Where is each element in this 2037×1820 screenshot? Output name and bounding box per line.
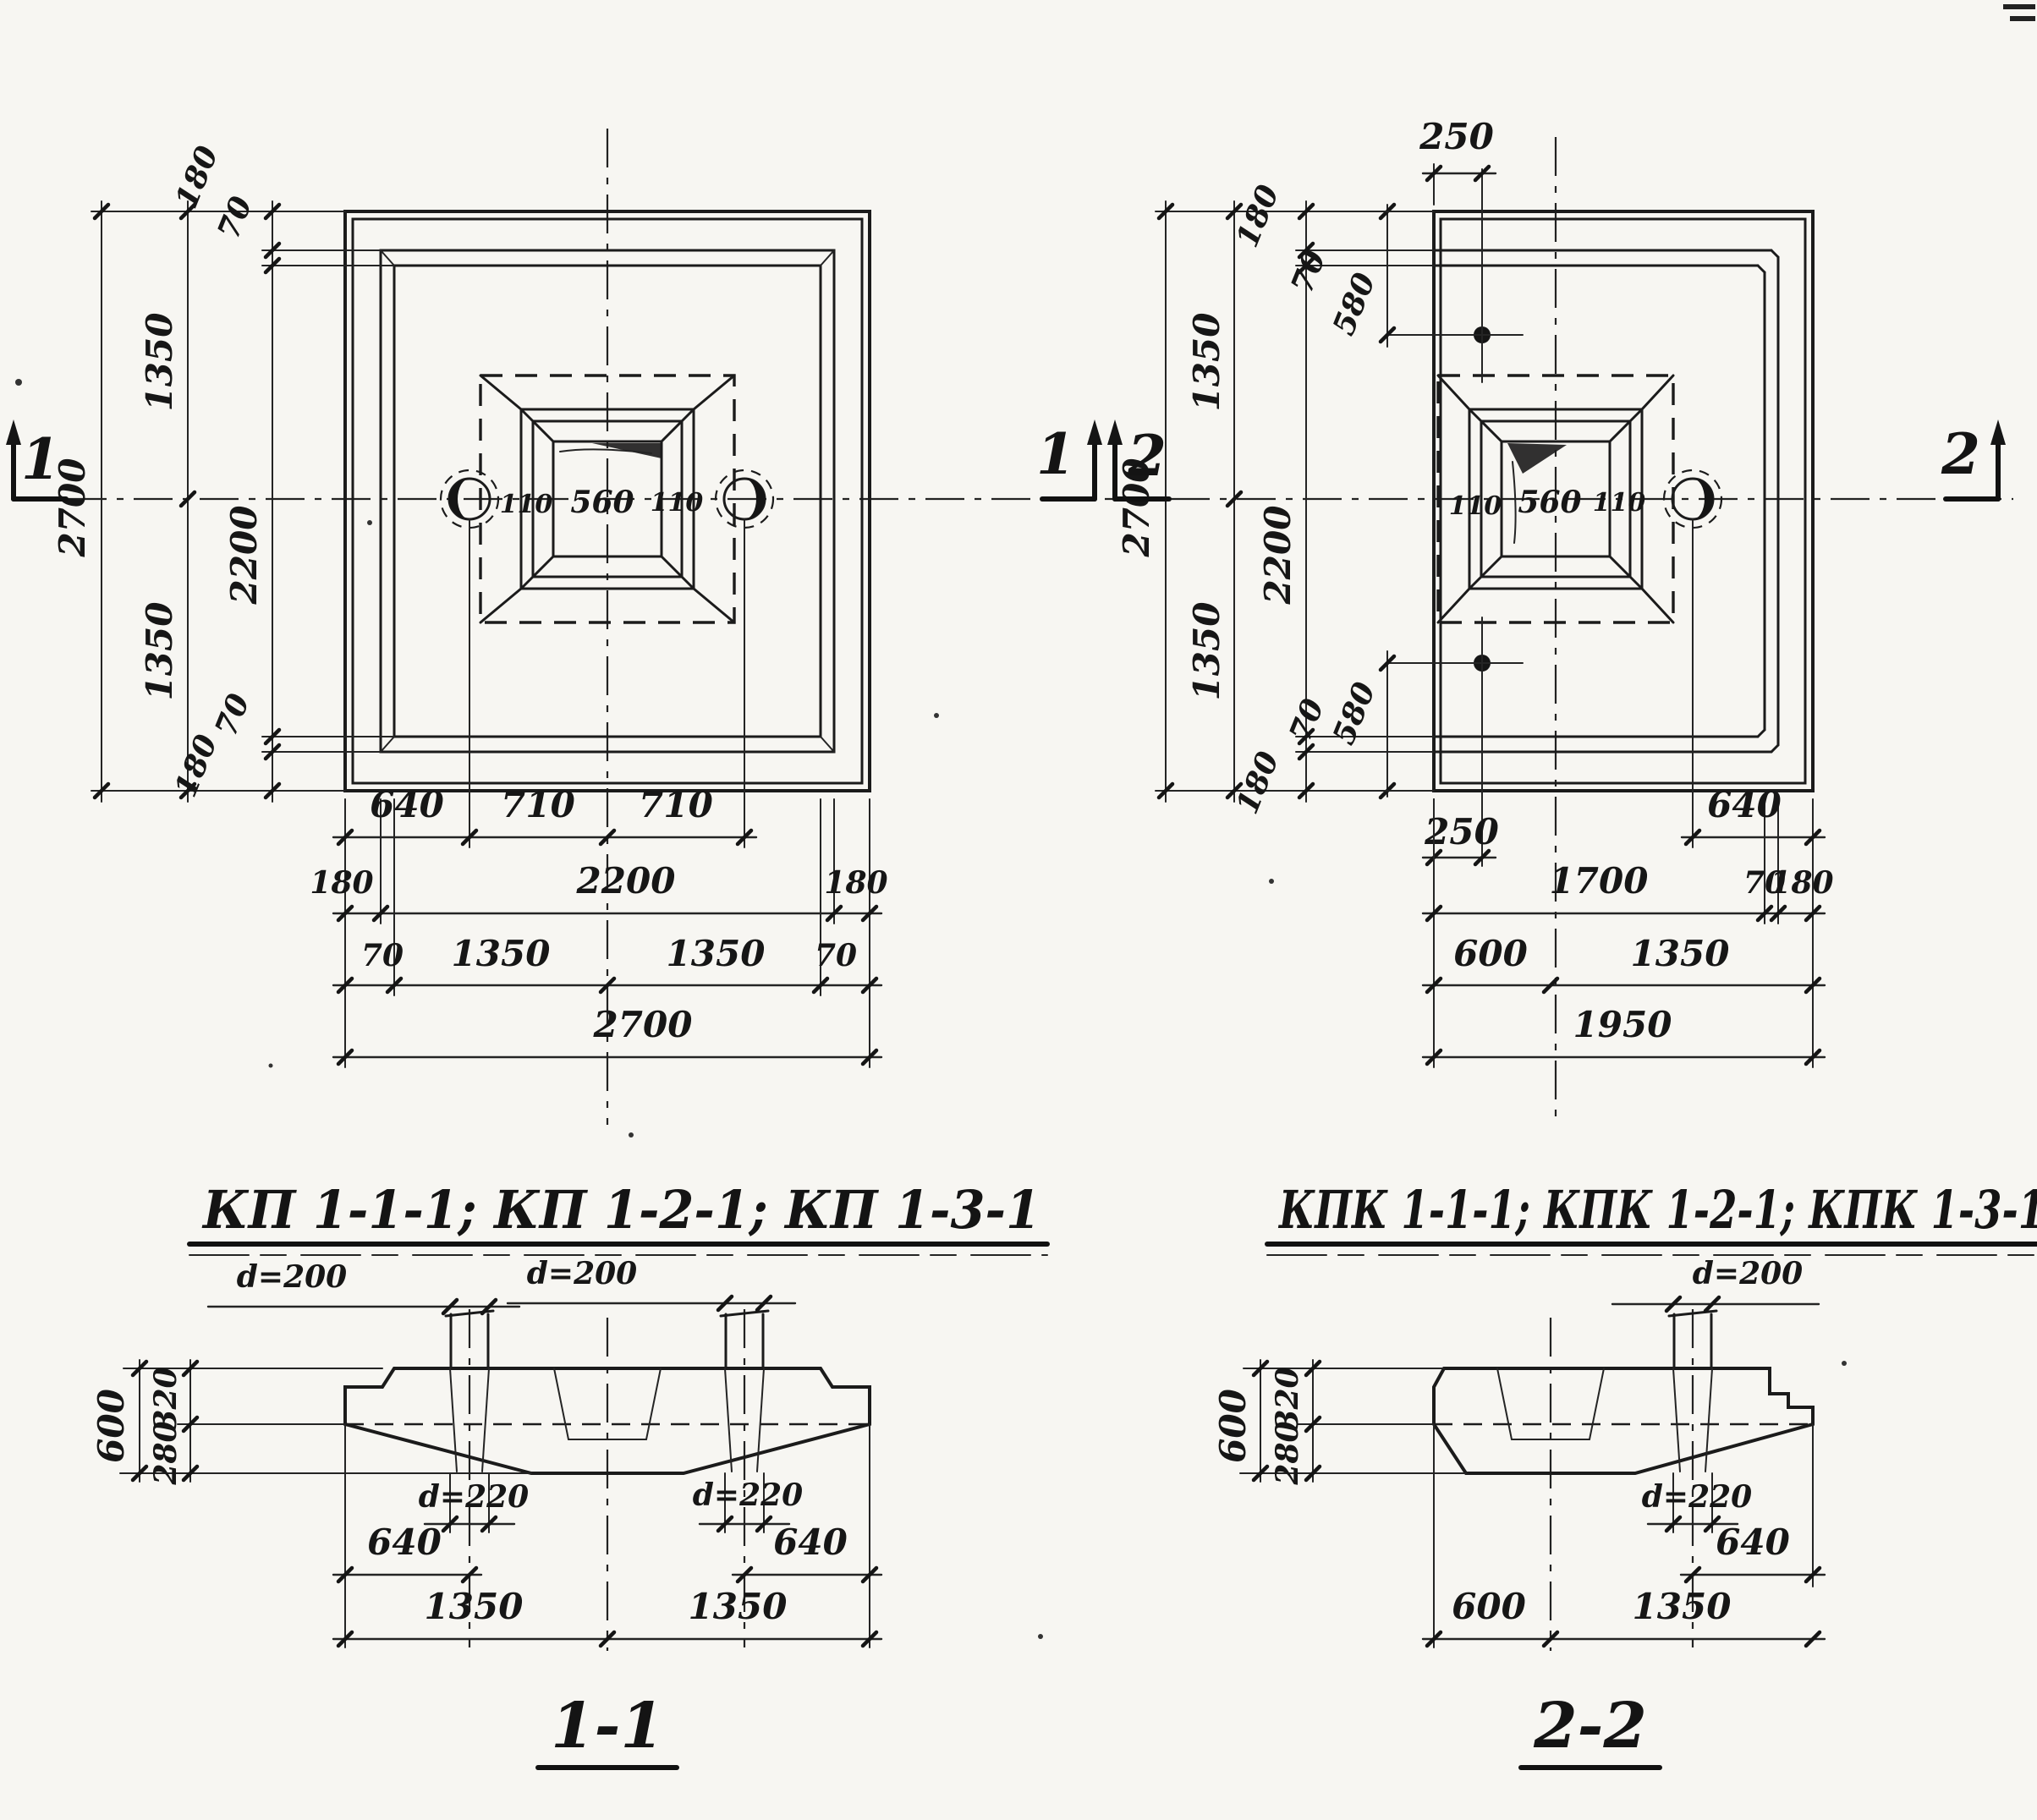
section-1-1: d=200 d=200 600 320 280 d=220 d=220 640 … bbox=[91, 1256, 881, 1768]
dim-label: 1350 bbox=[425, 1586, 524, 1627]
drawing-sheet: 2700 1350 1350 2200 180 70 70 180 110 56… bbox=[0, 0, 2037, 1820]
dim-label: 710 bbox=[639, 784, 713, 825]
dim-label: 180 bbox=[310, 865, 373, 901]
socket-ink-smudge bbox=[1507, 443, 1567, 474]
dim-label: 2200 bbox=[576, 860, 676, 902]
dim-label: 1950 bbox=[1573, 1004, 1672, 1045]
dim-label: d=220 bbox=[1642, 1479, 1752, 1515]
dim-label: 580 bbox=[1326, 677, 1382, 749]
socket-dim: 110 bbox=[500, 490, 553, 519]
right-title: КПК 1-1-1; КПК 1-2-1; КПК 1-3-1 bbox=[1278, 1179, 2037, 1241]
dim-label: 70 bbox=[211, 191, 260, 244]
svg-text:2: 2 bbox=[1127, 423, 1167, 489]
section-mark-1-right: 1 bbox=[1036, 419, 1102, 499]
dim-label: 70 bbox=[208, 688, 257, 741]
dim-label: 1350 bbox=[139, 602, 180, 701]
dim-label: d=200 bbox=[527, 1256, 637, 1291]
dim-label: d=220 bbox=[419, 1479, 529, 1515]
svg-text:1: 1 bbox=[1036, 421, 1075, 487]
dim-label: 640 bbox=[367, 1521, 442, 1563]
section-mark-2-right: 2 bbox=[1941, 419, 2006, 499]
left-title: КП 1-1-1; КП 1-2-1; КП 1-3-1 bbox=[201, 1179, 1040, 1241]
dim-label: 1350 bbox=[667, 933, 766, 974]
dim-label: 1350 bbox=[1186, 602, 1227, 701]
dim-label: 1350 bbox=[1633, 1586, 1732, 1627]
dim-label: d=220 bbox=[693, 1477, 803, 1513]
dim-label: 320 bbox=[1270, 1367, 1305, 1430]
dim-label: 640 bbox=[773, 1521, 848, 1563]
dim-label: 70 bbox=[361, 938, 404, 973]
dim-label: 180 bbox=[1229, 180, 1286, 252]
anchor-point-top bbox=[1387, 164, 1523, 382]
dim-label: 1350 bbox=[139, 313, 180, 412]
right-plan: 250 250 2700 1350 1350 2200 180 70 580 7… bbox=[1105, 116, 2013, 1125]
left-title-block: КП 1-1-1; КП 1-2-1; КП 1-3-1 bbox=[189, 1179, 1047, 1255]
dim-label: 1350 bbox=[1186, 313, 1227, 412]
dim-label: 2200 bbox=[223, 506, 265, 606]
dim-label: 600 bbox=[1452, 1586, 1526, 1627]
socket-dim: 560 bbox=[570, 485, 634, 520]
dim-label: 640 bbox=[370, 784, 444, 825]
dim-label: 250 bbox=[1424, 811, 1499, 852]
dim-label: 180 bbox=[1770, 865, 1833, 901]
dim-label: 250 bbox=[1419, 116, 1494, 157]
dim-label: 1350 bbox=[452, 933, 551, 974]
blueprint-canvas: 2700 1350 1350 2200 180 70 70 180 110 56… bbox=[0, 0, 2037, 1820]
socket-dim: 110 bbox=[651, 488, 704, 518]
section-2-2: d=200 600 320 280 d=220 640 600 1350 2-2 bbox=[1212, 1256, 1825, 1768]
dim-label: 280 bbox=[148, 1421, 184, 1485]
dim-label: 1350 bbox=[1631, 933, 1730, 974]
svg-text:1: 1 bbox=[21, 426, 60, 492]
socket-dim: 110 bbox=[1449, 491, 1502, 521]
section-mark-2-left: 2 bbox=[1107, 419, 1169, 499]
left-plan: 2700 1350 1350 2200 180 70 70 180 110 56… bbox=[6, 129, 1102, 1125]
foundation-block-outline bbox=[1434, 1368, 1813, 1473]
section-mark-1-left: 1 bbox=[6, 419, 66, 499]
dim-label: 600 bbox=[1212, 1389, 1254, 1463]
dim-label: 1700 bbox=[1550, 860, 1649, 902]
dim-label: 320 bbox=[148, 1367, 184, 1430]
right-title-block: КПК 1-1-1; КПК 1-2-1; КПК 1-3-1 bbox=[1267, 1179, 2037, 1255]
dim-label: 580 bbox=[1326, 268, 1382, 340]
dim-label: 70 bbox=[1282, 693, 1331, 746]
dim-label: 180 bbox=[1229, 747, 1286, 819]
dim-label: 710 bbox=[501, 784, 575, 825]
dim-label: 180 bbox=[168, 141, 225, 213]
dim-label: d=200 bbox=[237, 1259, 347, 1295]
dim-label: 600 bbox=[1453, 933, 1528, 974]
dim-label: 600 bbox=[91, 1389, 132, 1463]
dim-label: 2700 bbox=[593, 1004, 693, 1045]
svg-text:2: 2 bbox=[1941, 421, 1980, 487]
socket-dim: 110 bbox=[1593, 488, 1646, 518]
dim-label: 280 bbox=[1270, 1421, 1305, 1485]
dim-label: d=200 bbox=[1693, 1256, 1803, 1291]
dim-label: 180 bbox=[824, 865, 887, 901]
dim-label: 70 bbox=[815, 938, 857, 973]
dim-label: 640 bbox=[1707, 784, 1782, 825]
dim-label: 70 bbox=[1284, 245, 1333, 298]
section-caption: 2-2 bbox=[1533, 1690, 1647, 1762]
section-caption: 1-1 bbox=[551, 1690, 664, 1762]
dim-label: 1350 bbox=[689, 1586, 788, 1627]
socket-dim: 560 bbox=[1518, 485, 1581, 520]
dim-label: 640 bbox=[1716, 1521, 1790, 1563]
dim-label: 2200 bbox=[1257, 506, 1299, 606]
socket-scribble bbox=[1513, 462, 1516, 543]
